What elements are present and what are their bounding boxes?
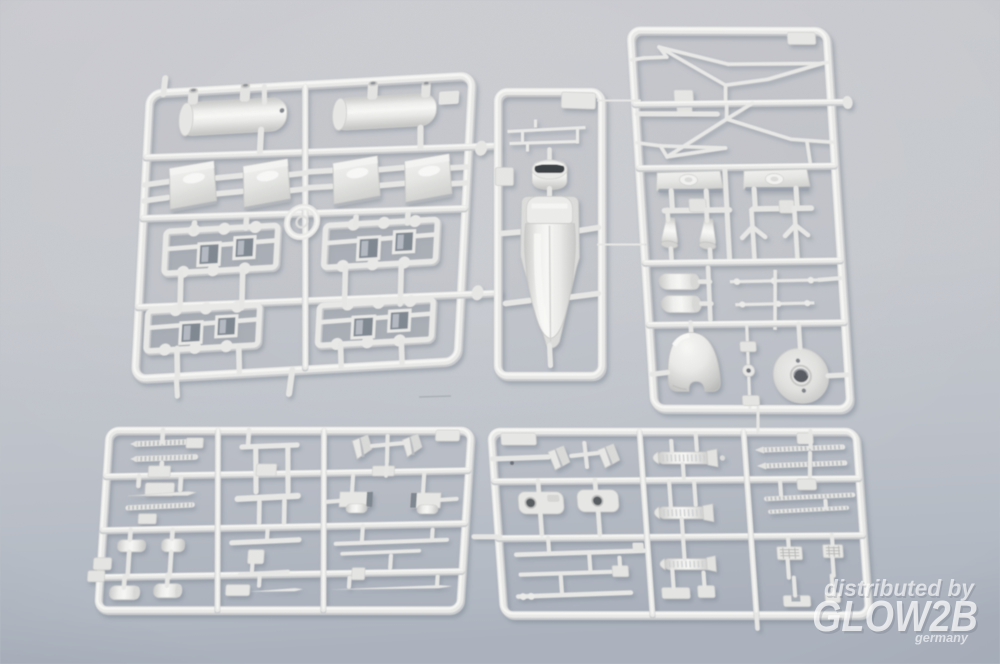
svg-text:germany: germany bbox=[914, 630, 969, 645]
